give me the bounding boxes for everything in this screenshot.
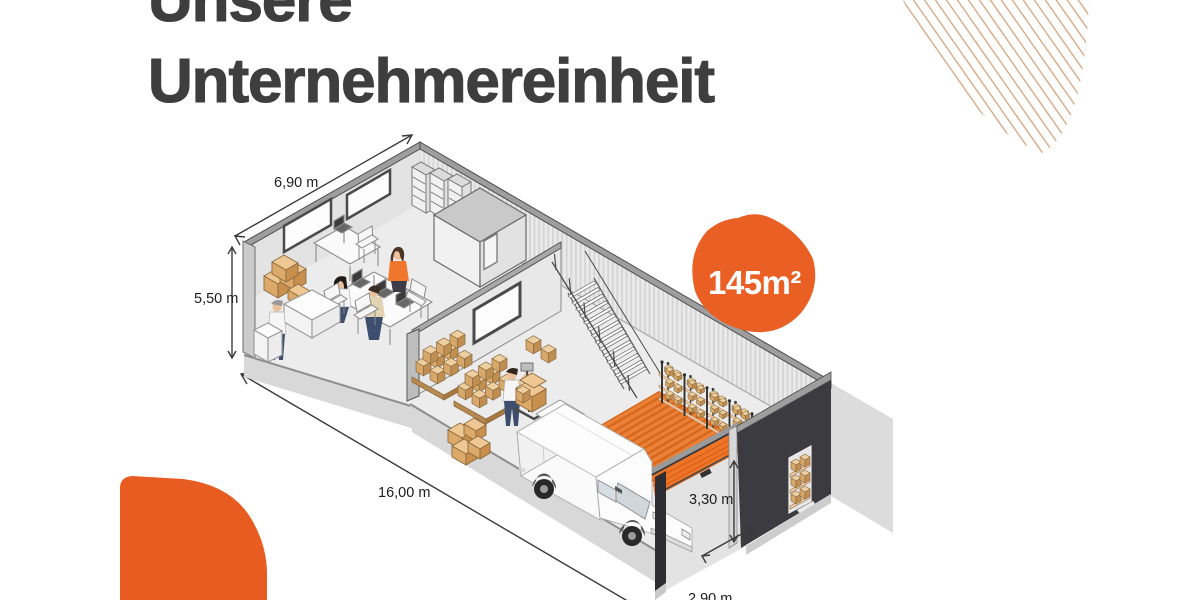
svg-text:145m²: 145m² <box>708 264 801 301</box>
svg-text:Unternehmereinheit: Unternehmereinheit <box>148 47 714 116</box>
svg-text:6,90 m: 6,90 m <box>274 175 318 191</box>
svg-text:2,90 m: 2,90 m <box>688 591 732 600</box>
svg-text:Unsere: Unsere <box>148 0 352 35</box>
svg-text:16,00 m: 16,00 m <box>378 485 430 501</box>
svg-text:5,50 m: 5,50 m <box>194 291 238 307</box>
svg-text:3,30 m: 3,30 m <box>689 492 733 508</box>
